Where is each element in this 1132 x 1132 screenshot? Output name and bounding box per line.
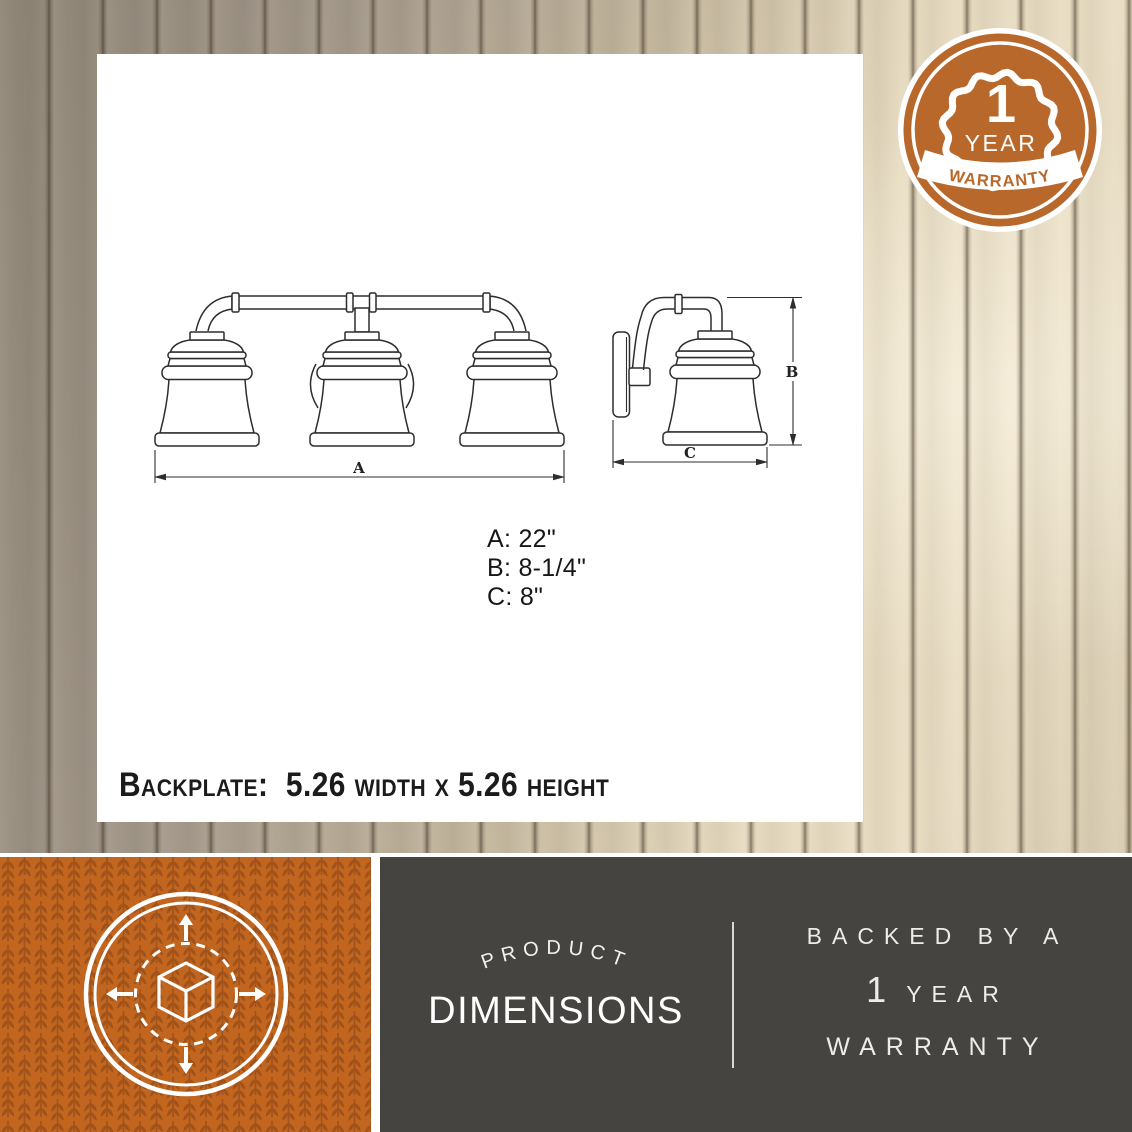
- front-view: [155, 293, 564, 446]
- warranty-badge: 1 YEAR WARRANTY: [894, 24, 1106, 236]
- warranty-text-block: BACKED BY A 1 YEAR WARRANTY: [733, 857, 1132, 1132]
- panel-title-dimensions: DIMENSIONS: [428, 990, 684, 1032]
- badge-year: YEAR: [965, 130, 1038, 156]
- product-dimensions-tile: A B: [0, 0, 1132, 1132]
- dimension-value-a: A: 22": [487, 525, 586, 554]
- dimension-values: A: 22" B: 8-1/4" C: 8": [487, 525, 586, 612]
- product-dimensions-block: PRODUCT DIMENSIONS: [380, 857, 733, 1132]
- arc-text-product: PRODUCT: [478, 937, 634, 974]
- product-card: A B: [97, 54, 863, 822]
- dimension-value-c: C: 8": [487, 583, 586, 612]
- dimension-c-label: C: [684, 444, 696, 462]
- pattern-tile: [0, 857, 371, 1132]
- dimension-b-label: B: [786, 363, 799, 381]
- warranty-line3: WARRANTY: [733, 1033, 1132, 1062]
- warranty-year: YEAR: [906, 981, 1009, 1008]
- dimension-value-b: B: 8-1/4": [487, 554, 586, 583]
- dimension-a-label: A: [352, 459, 365, 477]
- warranty-number: 1: [866, 969, 886, 1011]
- side-view: [613, 295, 767, 446]
- footer-panel: PRODUCT DIMENSIONS BACKED BY A 1 YEAR WA…: [380, 857, 1132, 1132]
- dimensions-icon-graphic: [0, 857, 371, 1132]
- backplate-note: Backplate: 5.26 width x 5.26 height: [119, 766, 609, 805]
- warranty-line1: BACKED BY A: [733, 923, 1132, 950]
- badge-number: 1: [986, 74, 1016, 134]
- technical-drawing: A B: [137, 284, 817, 494]
- warranty-line2: 1 YEAR: [733, 969, 1132, 1011]
